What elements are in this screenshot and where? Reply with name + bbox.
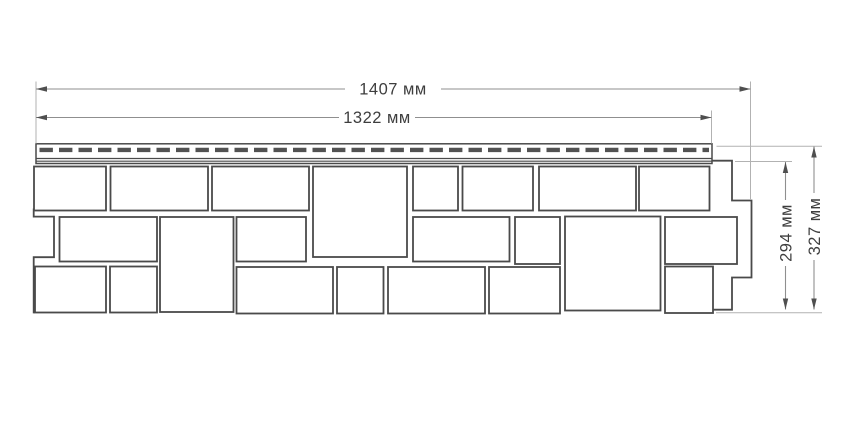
dimension-arrowhead <box>783 299 788 310</box>
dimension-label: 1407 мм <box>359 81 426 99</box>
stone-blocks <box>34 167 737 314</box>
stone-block <box>337 267 384 314</box>
stone-block <box>212 167 309 211</box>
stone-block <box>539 167 636 211</box>
stone-block <box>388 267 485 314</box>
stone-block <box>639 167 710 211</box>
dimension-arrowhead <box>783 162 788 173</box>
dimension-height-panel: 294 мм <box>735 162 795 310</box>
stone-block <box>111 167 209 211</box>
stone-block <box>565 217 661 311</box>
stone-block <box>665 217 737 264</box>
stone-block <box>413 167 458 211</box>
stone-block <box>413 217 510 262</box>
dimension-label: 294 мм <box>777 204 795 262</box>
dimension-arrowhead <box>701 115 712 120</box>
panel-drawing-canvas: 1407 мм1322 мм294 мм327 мм <box>0 0 850 425</box>
dimension-label: 1322 мм <box>343 109 410 127</box>
stone-block <box>489 267 560 314</box>
stone-block <box>60 217 158 262</box>
dimension-label: 327 мм <box>806 198 824 256</box>
dimension-arrowhead <box>36 115 47 120</box>
dimension-arrowhead <box>36 86 47 91</box>
stone-block <box>515 217 560 264</box>
dimension-arrowhead <box>811 299 816 310</box>
stone-block <box>34 167 106 211</box>
dimension-width-hem: 1322 мм <box>36 109 712 144</box>
stone-block <box>237 267 334 314</box>
nailing-strip-body <box>36 144 712 164</box>
nailing-strip <box>36 144 712 164</box>
stone-block <box>665 267 713 314</box>
stone-block <box>237 217 307 262</box>
stone-block <box>463 167 534 211</box>
stone-block <box>160 217 234 312</box>
dimension-arrowhead <box>811 147 816 158</box>
stone-block <box>35 267 106 313</box>
drawing-svg: 1407 мм1322 мм294 мм327 мм <box>0 0 850 425</box>
dimension-arrowhead <box>740 86 751 91</box>
stone-block <box>313 167 407 258</box>
stone-block <box>110 267 157 313</box>
